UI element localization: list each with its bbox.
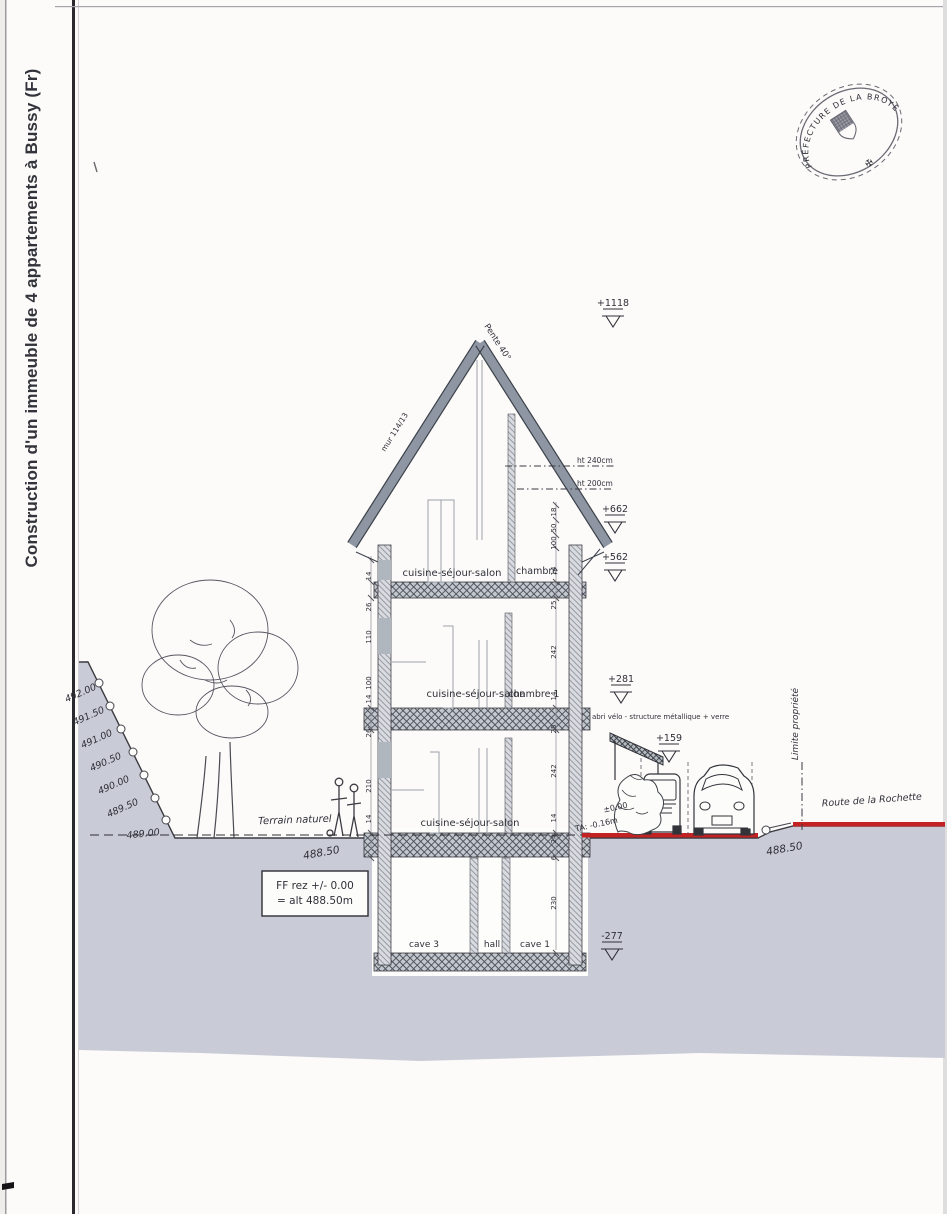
car-front-sketch xyxy=(694,765,754,835)
elevation-value: +159 xyxy=(656,733,682,744)
room-label-attic-living: cuisine-séjour-salon xyxy=(403,567,502,579)
car-headlight xyxy=(700,802,710,810)
dim-value: 100 xyxy=(550,536,558,549)
room-label-hall: hall xyxy=(484,940,500,950)
car-headlight xyxy=(734,802,744,810)
level-marker-icon xyxy=(604,563,626,581)
elevation-marker: +562 xyxy=(602,552,628,581)
partition-basement-2 xyxy=(502,858,510,953)
dim-value: 14 xyxy=(365,814,373,823)
elevation-value: +1118 xyxy=(597,298,629,309)
tree-trunks xyxy=(197,742,234,838)
wall-right xyxy=(569,545,582,965)
tree-canopy xyxy=(196,686,268,738)
elevation-value: +281 xyxy=(608,674,634,685)
elevation-value: -277 xyxy=(601,931,623,942)
person-body xyxy=(331,786,347,836)
elevation-marker: +662 xyxy=(602,504,628,533)
wall-spec-label: mur 114/13 xyxy=(379,411,410,453)
step-circle xyxy=(151,794,159,802)
level-marker-icon xyxy=(610,685,632,703)
step-circle xyxy=(129,748,137,756)
room-label-cave3: cave 3 xyxy=(409,940,439,950)
elevation-marker: +1118 xyxy=(597,298,629,327)
ff-level-box xyxy=(262,871,368,916)
elevation-value: +662 xyxy=(602,504,628,515)
car-plate xyxy=(712,816,732,825)
paper-edge-line xyxy=(5,0,7,1214)
dim-value: 18 xyxy=(550,508,558,517)
basement-interior xyxy=(391,857,569,953)
fold-line-dark xyxy=(72,0,75,1214)
step-circle xyxy=(162,816,170,824)
road-surface-right xyxy=(793,822,945,827)
stamp-ring xyxy=(784,70,915,194)
elevation-value: +562 xyxy=(602,552,628,563)
scanned-plan-page: 492.00 491.50 491.00 490.50 490.00 489.5… xyxy=(0,0,947,1214)
page-title: Construction d'un immeuble de 4 appartem… xyxy=(12,8,52,628)
person-head xyxy=(335,778,343,786)
height-label-200: ht 200cm xyxy=(577,479,613,488)
step-circle xyxy=(117,725,125,733)
top-scan-line xyxy=(55,6,947,7)
stamp-shield-hatch xyxy=(831,110,854,132)
dim-left-chain: 14 26 110 100 14 26 210 14 xyxy=(365,571,373,823)
step-circle xyxy=(95,679,103,687)
slab-basement-floor xyxy=(374,953,586,971)
person-body xyxy=(347,792,361,837)
person-head xyxy=(350,784,358,792)
van-wheel xyxy=(673,826,681,834)
dim-value: 242 xyxy=(550,764,558,777)
tree-canopy xyxy=(142,655,214,715)
stamp-scallop-ring xyxy=(778,65,920,200)
dim-value: 210 xyxy=(365,779,373,792)
dim-value: 14 xyxy=(365,571,373,580)
dim-value: 26 xyxy=(365,728,373,737)
dim-value: 25 xyxy=(550,601,558,610)
room-label-attic-bedroom: chambre xyxy=(516,566,558,577)
room-label-ground-living: cuisine-séjour-salon xyxy=(421,817,520,829)
room-label-floor1-bedroom: chambre 1 xyxy=(509,689,560,700)
step-circle xyxy=(140,771,148,779)
height-label-240: ht 240cm xyxy=(577,456,613,465)
step-circle xyxy=(106,702,114,710)
partition-attic xyxy=(508,414,515,582)
dim-value: 100 xyxy=(365,676,373,689)
dim-value: 230 xyxy=(550,896,558,909)
road-name-label: Route de la Rochette xyxy=(821,792,922,810)
ff-level-line2: = alt 488.50m xyxy=(277,895,353,907)
dim-value: 110 xyxy=(365,630,373,643)
dim-value: 50 xyxy=(550,524,558,533)
dim-value: 14 xyxy=(365,694,373,703)
paper-edge xyxy=(0,0,5,1214)
car-wheel xyxy=(741,829,750,835)
car-wheel xyxy=(694,829,703,835)
scan-speck xyxy=(94,162,97,172)
prefecture-stamp: PRÉFECTURE DE LA BROYE ✠ xyxy=(777,64,921,200)
bike-shelter-label: abri vélo - structure métallique + verre xyxy=(592,713,729,721)
people-sketch xyxy=(327,778,361,837)
level-marker-icon xyxy=(602,309,624,327)
section-drawing: 492.00 491.50 491.00 490.50 490.00 489.5… xyxy=(0,0,947,1214)
dim-value: 14 xyxy=(550,813,558,822)
tree-canopy xyxy=(218,632,298,704)
tree-sketch xyxy=(142,580,298,838)
partition-basement-1 xyxy=(470,858,478,953)
dim-value: 26 xyxy=(365,602,373,611)
roof-annotations: Pente 40° mur 114/13 ht 240cm ht 200cm xyxy=(379,322,614,489)
property-limit-label: Limite propriété xyxy=(790,687,801,760)
fold-line-faint xyxy=(78,0,79,1214)
tree-foliage-lines xyxy=(180,620,251,706)
elevation-marker: +281 xyxy=(608,674,634,703)
dim-value: 6 xyxy=(550,855,558,860)
room-label-cave1: cave 1 xyxy=(520,940,550,950)
level-marker-icon xyxy=(604,515,626,533)
manhole-circle xyxy=(762,826,770,834)
ff-level-line1: FF rez +/- 0.00 xyxy=(276,880,354,892)
tree-canopy xyxy=(152,580,268,680)
roof-left-slope xyxy=(352,343,480,545)
roof-right-slope xyxy=(480,343,608,545)
dim-value: 25 xyxy=(550,725,558,734)
dim-value: 242 xyxy=(550,645,558,658)
terrain-natural-label: Terrain naturel xyxy=(258,814,332,828)
